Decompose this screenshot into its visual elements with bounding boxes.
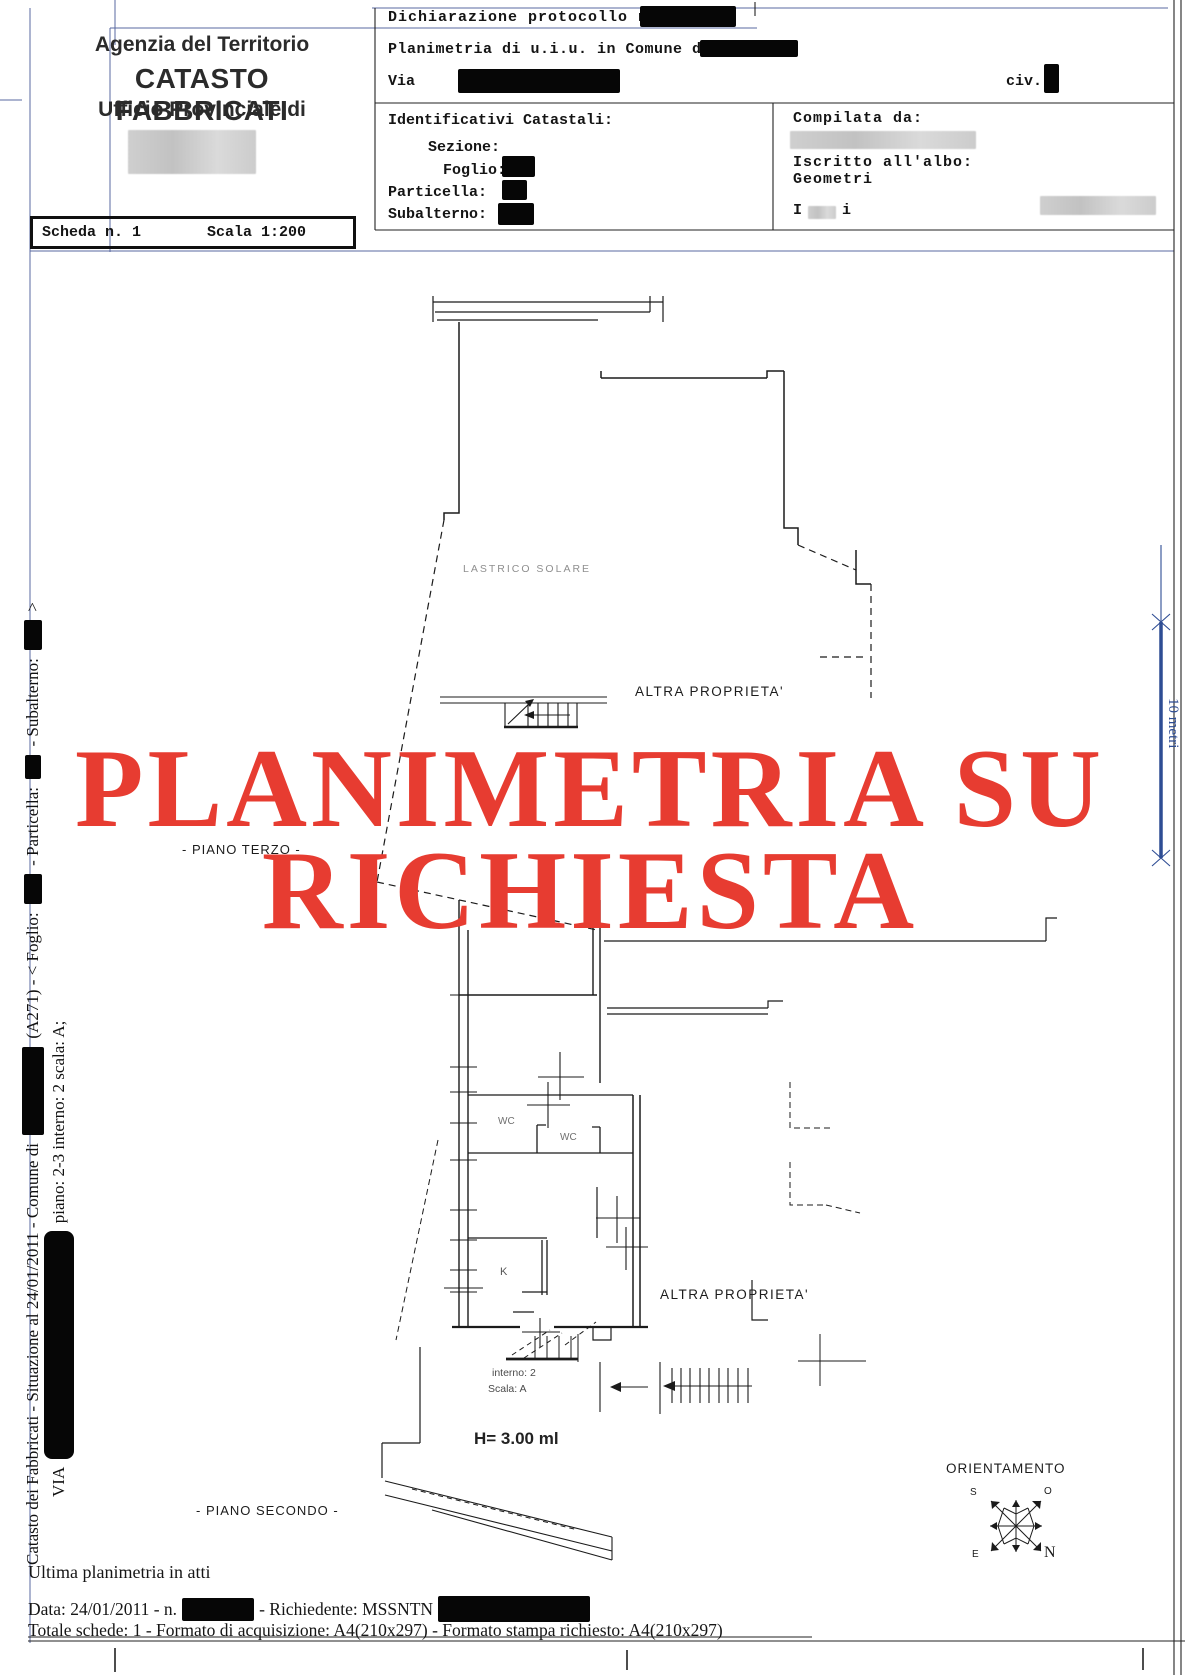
compass-rose <box>990 1500 1042 1552</box>
margin-caption-part1: Catasto dei Fabbricati - Situazione al 2… <box>23 1139 42 1565</box>
altra-proprieta-lower-label: ALTRA PROPRIETA' <box>660 1287 809 1302</box>
margin-caption-part4: - Subalterno: <box>23 654 42 751</box>
sheet-scale: Scala 1:200 <box>207 224 306 241</box>
planimetria-su-richiesta-stamp: PLANIMETRIA SU RICHIESTA <box>35 738 1145 942</box>
protocol-number-redaction <box>640 6 736 27</box>
scale-bar-label: 10 metri <box>1164 698 1181 748</box>
footer-date-line: Data: 24/01/2011 - n. - Richiedente: MSS… <box>28 1596 590 1622</box>
margin-subalterno-redaction <box>24 620 42 650</box>
footer-date-part1: Data: 24/01/2011 - n. <box>28 1599 177 1620</box>
margin-address-part2: piano: 2-3 interno: 2 scala: A; <box>49 1021 68 1228</box>
piano-secondo-label: - PIANO SECONDO - <box>196 1503 339 1518</box>
margin-caption-part5: > <box>23 602 42 616</box>
subaltern-label: Subalterno: <box>388 206 487 223</box>
orientation-title: ORIENTAMENTO <box>946 1461 1066 1476</box>
register-label: Iscritto all'albo: <box>793 154 973 171</box>
foglio-redaction <box>502 156 535 177</box>
compiled-by-label: Compilata da: <box>793 110 923 127</box>
subalterno-redaction <box>498 203 534 225</box>
kitchen-label: K <box>500 1266 507 1278</box>
office-title: Ufficio Provinciale di <box>52 98 352 122</box>
street-name-redaction <box>458 69 620 93</box>
sheet-info-box: Scheda n. 1 Scala 1:200 <box>30 216 356 249</box>
particella-redaction <box>502 180 527 200</box>
lastrico-solare-label: LASTRICO SOLARE <box>463 563 591 575</box>
footer-totals-line: Totale schede: 1 - Formato di acquisizio… <box>28 1620 723 1641</box>
cadastral-ids-title: Identificativi Catastali: <box>388 112 613 129</box>
wc2-label: WC <box>560 1132 577 1143</box>
scala-label: Scala: A <box>488 1383 527 1395</box>
section-label: Sezione: <box>428 139 500 156</box>
signature-fragment-right: i <box>842 202 851 219</box>
compass-west-label: O <box>1044 1486 1052 1497</box>
margin-address-part1: VIA <box>49 1463 68 1497</box>
signature-blur-small <box>808 206 836 219</box>
compass-south-label: S <box>970 1487 977 1498</box>
last-plan-note: Ultima planimetria in atti <box>28 1562 210 1583</box>
wc1-label: WC <box>498 1116 515 1127</box>
office-name-redaction-blur <box>128 130 256 174</box>
margin-via-redaction <box>44 1231 74 1459</box>
sheet-number: Scheda n. 1 <box>42 224 141 241</box>
signature-blur-right <box>1040 196 1156 215</box>
margin-caption-cadastral: Catasto dei Fabbricati - Situazione al 2… <box>22 443 44 1565</box>
agency-title: Agenzia del Territorio <box>52 33 352 57</box>
sheet-label: Foglio: <box>443 162 506 179</box>
signature-fragment-left: I <box>793 202 802 219</box>
footer-number-redaction <box>182 1598 254 1621</box>
height-label: H= 3.00 ml <box>474 1429 559 1449</box>
parcel-label: Particella: <box>388 184 487 201</box>
comune-redaction <box>700 40 798 57</box>
margin-comune-redaction <box>22 1047 44 1135</box>
stamp-line-2: RICHIESTA <box>35 840 1145 942</box>
civic-number-redaction <box>1044 64 1059 93</box>
compass-east-label: E <box>972 1549 979 1560</box>
civic-label: civ. <box>1006 73 1042 90</box>
planimetry-label: Planimetria di u.i.u. in Comune di <box>388 41 711 58</box>
street-label: Via <box>388 73 415 90</box>
footer-date-part2: - Richiedente: MSSNTN <box>259 1599 433 1620</box>
margin-caption-address: VIA piano: 2-3 interno: 2 scala: A; <box>44 985 74 1497</box>
compiler-name-blur <box>790 131 976 149</box>
compass-north-label: N <box>1044 1544 1056 1562</box>
altra-proprieta-upper-label: ALTRA PROPRIETA' <box>635 684 784 699</box>
interno-label: interno: 2 <box>492 1367 536 1379</box>
register-value: Geometri <box>793 171 873 188</box>
cadastral-document-page: Agenzia del Territorio CATASTO FABBRICAT… <box>0 0 1188 1675</box>
declaration-label: Dichiarazione protocollo n. <box>388 9 658 26</box>
stamp-line-1: PLANIMETRIA SU <box>35 738 1145 840</box>
footer-requester-redaction <box>438 1596 590 1622</box>
